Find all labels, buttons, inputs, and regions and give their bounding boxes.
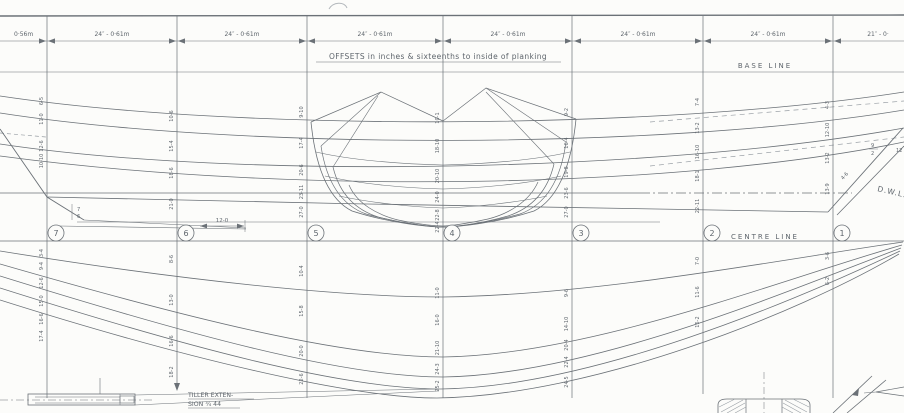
offset-figure: 7-0 [695,257,701,265]
body-plan [311,88,576,227]
leader-arrow-down [174,383,180,391]
bow-detail [833,376,904,413]
edge-partial-label: 12 [896,148,902,154]
body-sheer-diagonal-aft [311,92,443,122]
scan-artifact [329,3,347,9]
offset-figure: 23-6 [564,187,570,198]
station-number-2: 2 [709,229,714,238]
offset-figure: 17-4 [299,137,305,148]
profile-sheer-curve [0,92,904,122]
offset-figure: 13-9 [825,183,831,194]
dimension-arrow [299,38,306,43]
station-number-3: 3 [578,229,583,238]
offset-figure: 9-10 [299,106,305,117]
offset-figure: 14-10 [564,317,570,332]
station-number-5: 5 [313,229,318,238]
dimension-arrow [48,38,55,43]
detail-diagonal [847,380,886,413]
half-breadth-plan [0,242,903,398]
dimension-arrow [39,38,46,43]
tiller-note-line1: TILLER EXTEN- [187,392,233,399]
dimension-arrow [308,38,315,43]
top-border-line [0,15,904,16]
detail-arrow [852,388,859,396]
plan-waterline-curve [0,242,903,297]
offset-figure: 12-10 [825,123,831,138]
dimension-arrow [178,38,185,43]
stem-frac-top: 9 [871,143,874,149]
offset-figure: 3-6 [825,252,831,260]
profile-dashed-line [0,133,46,137]
offset-figure: 7-4 [695,98,701,106]
offset-figure: 10-10 [39,154,45,169]
station-number-1: 1 [839,229,844,238]
body-section-aft [311,122,443,227]
offset-figure: 13-2 [695,122,701,133]
dimension-arrow [169,38,176,43]
offset-figure: 22-11 [695,199,701,214]
offset-figure: 16-0 [435,314,441,325]
offset-figure: 22-4 [435,221,441,232]
offset-figure: 6-5 [39,97,45,105]
profile-deck-curve [0,110,904,140]
offset-figure: 20-0 [299,345,305,356]
offset-figure: 12-6 [39,140,45,151]
body-section-aft [333,167,443,227]
offset-figure: 15-2 [695,316,701,327]
lines-plan-drawing: OFFSETS in inches & sixteenths to inside… [0,0,904,413]
body-crosstie [339,196,443,208]
offset-figure: 3-4 [39,249,45,257]
plan-waterline-curve [0,251,900,389]
dimension-arrow [574,38,581,43]
offset-figure: 22-8 [435,209,441,220]
profile-chine-curve [0,142,904,182]
profile-view [0,92,904,229]
offset-figure: 24-5 [564,376,570,387]
plan-waterline-curve [0,248,901,377]
offset-figure: 11-0 [39,113,45,124]
offset-figure: 8-6 [169,255,175,263]
stem-line [828,128,903,212]
offset-figure: 11-6 [695,286,701,297]
dimension-arrow [834,38,841,43]
dimension-arrow [825,38,832,43]
offset-figure: 27-0 [564,206,570,217]
drawing-labels: OFFSETS in inches & sixteenths to inside… [77,52,904,408]
base-line-label: BASE LINE [738,62,792,70]
dimension-arrow [435,38,442,43]
offset-figure: 22-4 [564,356,570,367]
body-sheer-diagonal-fwd [443,88,576,121]
stem-frac-bot: 2 [871,151,874,157]
dimension-arrow [565,38,572,43]
offset-figure: 18-10 [435,139,441,154]
offset-figure: 21-10 [435,341,441,356]
offset-figure: 20-10 [435,169,441,184]
offset-figure: 16-6 [169,335,175,346]
offset-figure: 4-3 [825,101,831,109]
body-section-fwd [443,164,554,227]
profile-waterline-curve [0,128,904,167]
profile-dashed-line [650,101,904,122]
transom-dim-top: 7 [77,207,80,213]
body-section-fwd [443,142,566,227]
dimension-label: 24″ - 0·61m [94,31,129,38]
offset-figure: 15-4 [169,140,175,151]
detail-nib-tail [864,392,876,393]
transom-dim-bot: 6 [77,214,80,220]
body-diagonal-fwd [486,88,566,142]
station-number-7: 7 [53,229,58,238]
station-number-4: 4 [449,229,454,238]
offset-figure: 9-6 [564,289,570,297]
offset-figure: 10-1 [435,112,441,123]
offset-figure: 15-0 [39,295,45,306]
offset-figure: 24-0 [435,191,441,202]
offset-figure: 13-2 [825,152,831,163]
dimension-label: 0·56m [14,31,33,38]
offset-figure: 23-11 [299,185,305,200]
offset-figure: 25-2 [435,380,441,391]
case-dim-label: 12-0 [216,218,229,224]
tiller-taper-lines [135,389,438,405]
offset-figure: 18-6 [169,167,175,178]
offset-figure: 9-2 [564,108,570,116]
dimension-arrow [200,224,207,229]
offset-figure: 6-2 [825,277,831,285]
body-diagonal-aft [321,92,381,146]
offset-figure: 24-3 [435,363,441,374]
dimension-arrow [695,38,702,43]
tiller-body [28,394,135,405]
detail-nib-lines [876,387,904,396]
tiller-note-line2: SION ¾ 44 [188,401,221,408]
offset-figure: 11-0 [435,287,441,298]
body-crosstie [325,176,443,189]
hatch-lines [782,399,809,413]
body-section-aft [349,185,443,226]
hatch-lines [719,399,746,413]
dimension-label: 24″ - 0·61m [490,31,525,38]
offset-figure: 20-6 [299,164,305,175]
dwl-label: D.W.L. [877,184,904,199]
offset-figure: 16-6 [39,313,45,324]
body-diagonal-fwd [486,92,554,164]
offset-figure: 18-2 [169,366,175,377]
offset-figure: 19-8 [564,166,570,177]
body-crosstie [316,152,443,165]
offset-figure: 18-1 [695,170,701,181]
hatched-section-detail [718,372,810,413]
offset-figure: 20-4 [564,339,570,350]
offset-figure: 16-10 [695,145,701,160]
dimension-label: 24″ - 0·61m [620,31,655,38]
dimension-arrow [444,38,451,43]
lines-plan-sheet: OFFSETS in inches & sixteenths to inside… [0,0,904,413]
tiller-inner-lines [35,394,120,405]
offset-figure: 21-0 [169,198,175,209]
profile-dashed-line [650,137,904,166]
dimension-label: 24″ - 0·61m [750,31,785,38]
offset-figure: 13-0 [169,294,175,305]
offset-figure: 12-6 [39,277,45,288]
dimension-arrow [704,38,711,43]
offset-figure: 27-0 [299,206,305,217]
offsets-note: OFFSETS in inches & sixteenths to inside… [329,52,547,61]
offset-figure: 15-8 [299,305,305,316]
body-diagonal-aft [333,96,378,167]
centre-line-label: CENTRE LINE [731,233,799,241]
stem-offset-label: 4-6 [840,171,850,181]
station-number-6: 6 [183,229,188,238]
offset-figure: 17-4 [39,330,45,341]
body-crosstie [443,176,561,189]
dimension-label: 21″ - 0· [867,31,889,38]
dimension-label: 24″ - 0·61m [357,31,392,38]
offset-figure: 10-6 [169,110,175,121]
tiller-end-fitting [120,396,134,403]
dimension-label: 24″ - 0·61m [224,31,259,38]
offset-figure: 22-6 [299,373,305,384]
offset-figure: 9-4 [39,262,45,270]
offset-figure: 10-4 [299,265,305,276]
offset-figure: 16-4 [564,137,570,148]
